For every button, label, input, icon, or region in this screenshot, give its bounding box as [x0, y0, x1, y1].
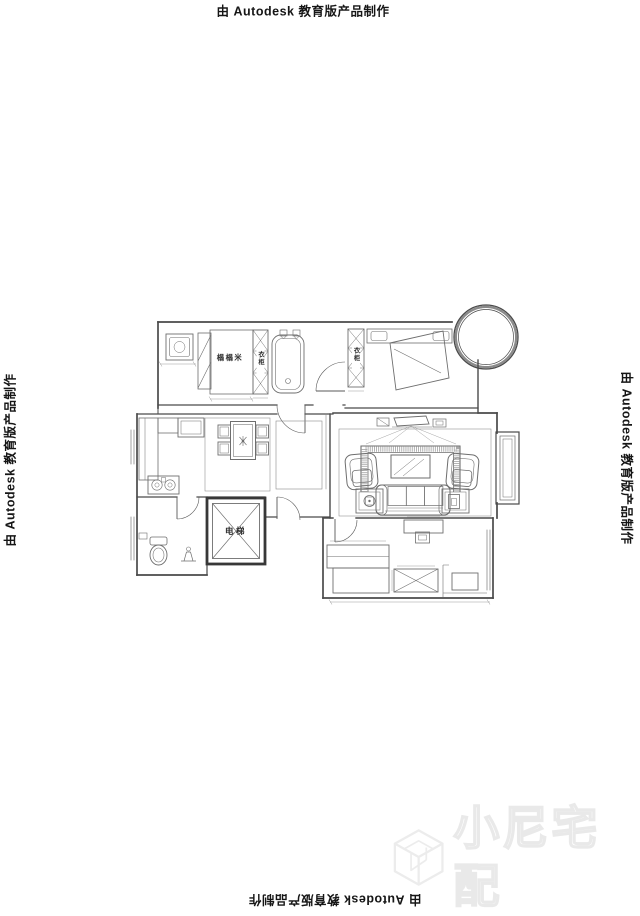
crossed-cabinet — [394, 569, 438, 592]
armchair-right — [445, 453, 479, 491]
washing-machine — [166, 334, 193, 360]
cube-n-icon — [392, 827, 445, 887]
tatami-platform — [210, 330, 253, 394]
living-room — [339, 416, 519, 516]
label-tatami-room: 榻榻米 — [217, 353, 243, 362]
bottom-suite — [327, 519, 487, 597]
cabinet-2 — [333, 568, 389, 593]
floor-stand — [181, 547, 196, 561]
side-table-left — [356, 489, 383, 513]
hatched-partition — [198, 333, 211, 389]
sofa — [376, 485, 450, 515]
room-labels: 榻榻米 衣柜 衣柜 电梯 — [217, 345, 360, 536]
tv — [377, 416, 446, 427]
brand-logo-text: 小尼宅配 — [453, 799, 640, 915]
dining-set — [205, 418, 270, 491]
label-elevator: 电梯 — [225, 526, 247, 536]
door-kitchen — [177, 497, 199, 519]
kitchen-counter — [139, 418, 204, 480]
table-plant-icon — [240, 436, 247, 446]
stove — [148, 476, 179, 494]
door-suite — [335, 519, 357, 542]
label-wardrobe-master: 衣柜 — [353, 346, 360, 362]
floor-plan-drawing: 榻榻米 衣柜 衣柜 电梯 — [0, 0, 640, 916]
door-bedroom — [316, 362, 345, 391]
furniture — [139, 329, 519, 597]
side-table-right — [442, 489, 469, 513]
door-entry — [277, 497, 300, 520]
dimension-lines — [159, 362, 490, 605]
bathtub — [272, 330, 304, 393]
master-bed — [367, 329, 452, 390]
label-wardrobe-hall: 衣柜 — [257, 350, 264, 366]
toilet — [150, 537, 167, 565]
door-foyer — [277, 405, 305, 433]
wall-fixture — [139, 533, 147, 539]
desk-and-stool — [404, 520, 443, 543]
bay-window — [496, 432, 519, 504]
coffee-table — [391, 455, 430, 478]
xiaoni-brand-watermark: 小尼宅配 — [392, 799, 640, 915]
cabinet-3 — [452, 573, 478, 590]
foyer-rug — [276, 421, 322, 489]
